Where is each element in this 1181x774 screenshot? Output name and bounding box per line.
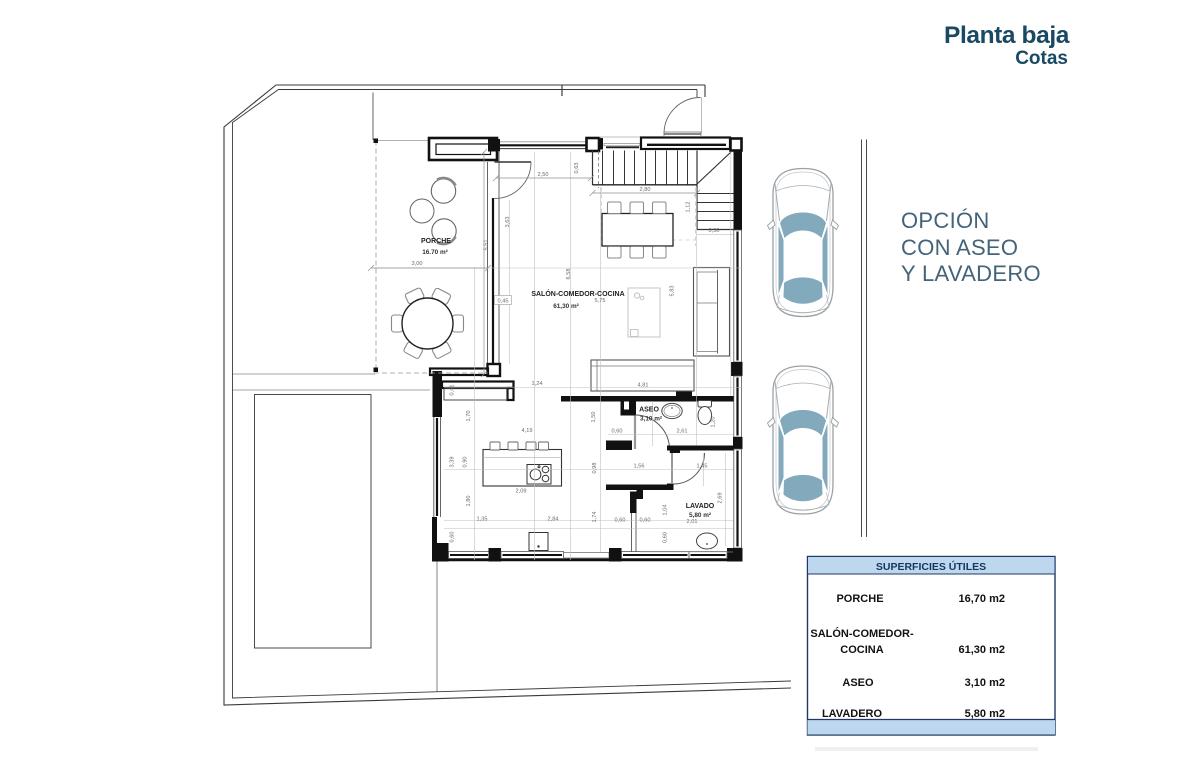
svg-text:1,80: 1,80 [466,496,472,507]
svg-text:OPCIÓN: OPCIÓN [901,208,990,233]
svg-text:2,69: 2,69 [718,493,724,504]
svg-text:3,63: 3,63 [505,217,511,228]
svg-text:SUPERFICIES ÚTILES: SUPERFICIES ÚTILES [876,560,986,573]
svg-text:ASEO: ASEO [639,407,659,414]
svg-text:Cotas: Cotas [1015,48,1068,69]
svg-text:1,74: 1,74 [592,512,598,523]
svg-text:ASEO: ASEO [842,677,874,689]
svg-text:0,45: 0,45 [498,299,509,305]
svg-text:6,58: 6,58 [566,269,572,280]
svg-text:LAVADERO: LAVADERO [822,708,883,720]
svg-text:0,90: 0,90 [463,457,469,468]
svg-text:LAVADO: LAVADO [686,503,715,510]
svg-text:2,80: 2,80 [640,187,651,193]
svg-text:1,70: 1,70 [466,411,472,422]
svg-text:SALÓN-COMEDOR-COCINA: SALÓN-COMEDOR-COCINA [531,289,624,298]
svg-text:1,24: 1,24 [532,381,543,387]
svg-text:2,09: 2,09 [516,489,527,495]
svg-text:2,01: 2,01 [687,519,698,525]
svg-text:5,75: 5,75 [595,298,606,304]
svg-text:16.70 m²: 16.70 m² [422,249,448,256]
svg-text:PORCHE: PORCHE [421,238,451,245]
svg-text:5,80 m2: 5,80 m2 [965,708,1005,720]
svg-text:0,60: 0,60 [663,532,669,543]
svg-text:61,30 m2: 61,30 m2 [959,644,1005,656]
svg-text:0,60: 0,60 [450,532,456,543]
svg-text:2,61: 2,61 [677,429,688,435]
svg-text:Planta baja: Planta baja [944,22,1070,49]
svg-text:4,81: 4,81 [638,383,649,389]
svg-text:0,60: 0,60 [640,518,651,524]
svg-text:0,63: 0,63 [574,163,580,174]
svg-text:1,50: 1,50 [591,412,597,423]
svg-text:1,12: 1,12 [686,202,692,213]
svg-text:3,10 m²: 3,10 m² [640,416,662,423]
svg-text:2,84: 2,84 [548,517,559,523]
svg-text:61,30 m²: 61,30 m² [553,303,579,310]
svg-text:3,00: 3,00 [412,261,423,267]
svg-text:0,50: 0,50 [709,228,720,234]
svg-text:5,80 m²: 5,80 m² [689,512,711,519]
svg-text:1,45: 1,45 [697,464,708,470]
svg-text:16,70 m2: 16,70 m2 [959,593,1005,605]
svg-text:0,41: 0,41 [450,385,456,396]
svg-text:0,98: 0,98 [592,463,598,474]
svg-text:1,35: 1,35 [477,517,488,523]
svg-text:Y LAVADERO: Y LAVADERO [901,261,1041,286]
svg-text:1,20: 1,20 [711,417,717,428]
svg-text:0,60: 0,60 [615,518,626,524]
svg-text:3,10 m2: 3,10 m2 [965,677,1005,689]
svg-text:2,50: 2,50 [538,172,549,178]
svg-text:5,83: 5,83 [670,286,676,297]
svg-text:4,19: 4,19 [522,428,533,434]
svg-text:PORCHE: PORCHE [836,593,883,605]
svg-text:1,04: 1,04 [663,505,669,516]
svg-text:SALÓN-COMEDOR-: SALÓN-COMEDOR- [810,627,914,640]
svg-text:5,51: 5,51 [484,240,490,251]
svg-text:CON ASEO: CON ASEO [901,235,1018,260]
svg-text:0,60: 0,60 [612,429,623,435]
svg-text:1,56: 1,56 [634,464,645,470]
svg-text:COCINA: COCINA [840,644,883,656]
svg-text:3,39: 3,39 [450,457,456,468]
